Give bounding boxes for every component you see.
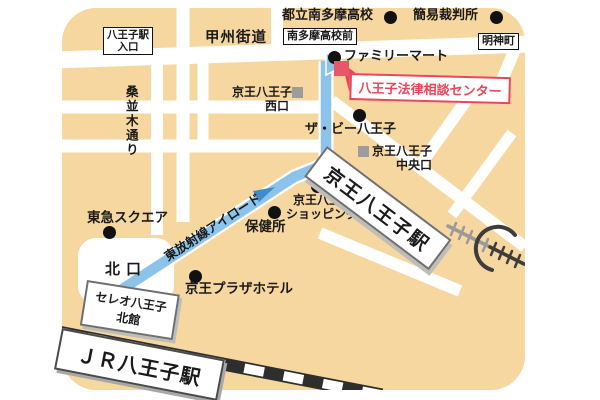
- box-myojincho: 明神町: [478, 33, 519, 50]
- box-hachioji-eki-iriguchi-l1: 八王子駅: [107, 29, 149, 41]
- destination-callout: 八王子法律相談センター: [349, 73, 511, 104]
- destination-marker: [334, 61, 349, 76]
- label-keio-central-l2: 中央口: [396, 159, 432, 172]
- label-hokenjo: 保健所: [245, 220, 286, 235]
- box-hachioji-eki-iriguchi: 八王子駅 入口: [103, 27, 153, 55]
- label-keio-central-l1: 京王八王子: [372, 145, 432, 158]
- dot-tokyu-square: [103, 226, 116, 239]
- label-the-b: ザ・ビー八王子: [305, 123, 396, 137]
- label-keio-west-l1: 京王八王子: [232, 86, 292, 99]
- label-kuwanamiki-dori: 桑並木通り: [124, 85, 138, 158]
- square-keio-west-exit: [292, 87, 303, 98]
- box-minamitama-kokomae: 南多摩高校前: [283, 28, 357, 45]
- label-minamitama-hs: 都立南多摩高校: [282, 9, 373, 23]
- label-keio-west-l2: 西口: [265, 100, 289, 113]
- dot-minamitama-hs: [384, 11, 397, 24]
- label-familymart: ファミリーマート: [344, 50, 448, 64]
- dot-saibansho: [490, 11, 503, 24]
- label-saibansho: 簡易裁判所: [413, 9, 478, 23]
- label-koshu-kaido: 甲州街道: [205, 31, 267, 47]
- dot-the-b: [353, 109, 366, 122]
- access-map: 都立南多摩高校 簡易裁判所 八王子駅 入口 南多摩高校前 明神町 甲州街道 桑並…: [0, 0, 600, 400]
- station-celeo-north-l2: 北館: [115, 308, 141, 329]
- label-tokyu-square: 東急スクエア: [87, 211, 168, 226]
- box-hachioji-eki-iriguchi-l2: 入口: [107, 41, 149, 53]
- square-keio-central-exit: [358, 146, 369, 157]
- dot-hokenjo: [268, 206, 281, 219]
- label-keio-plaza-hotel: 京王プラザホテル: [185, 282, 293, 297]
- label-kitaguchi: 北口: [105, 261, 147, 278]
